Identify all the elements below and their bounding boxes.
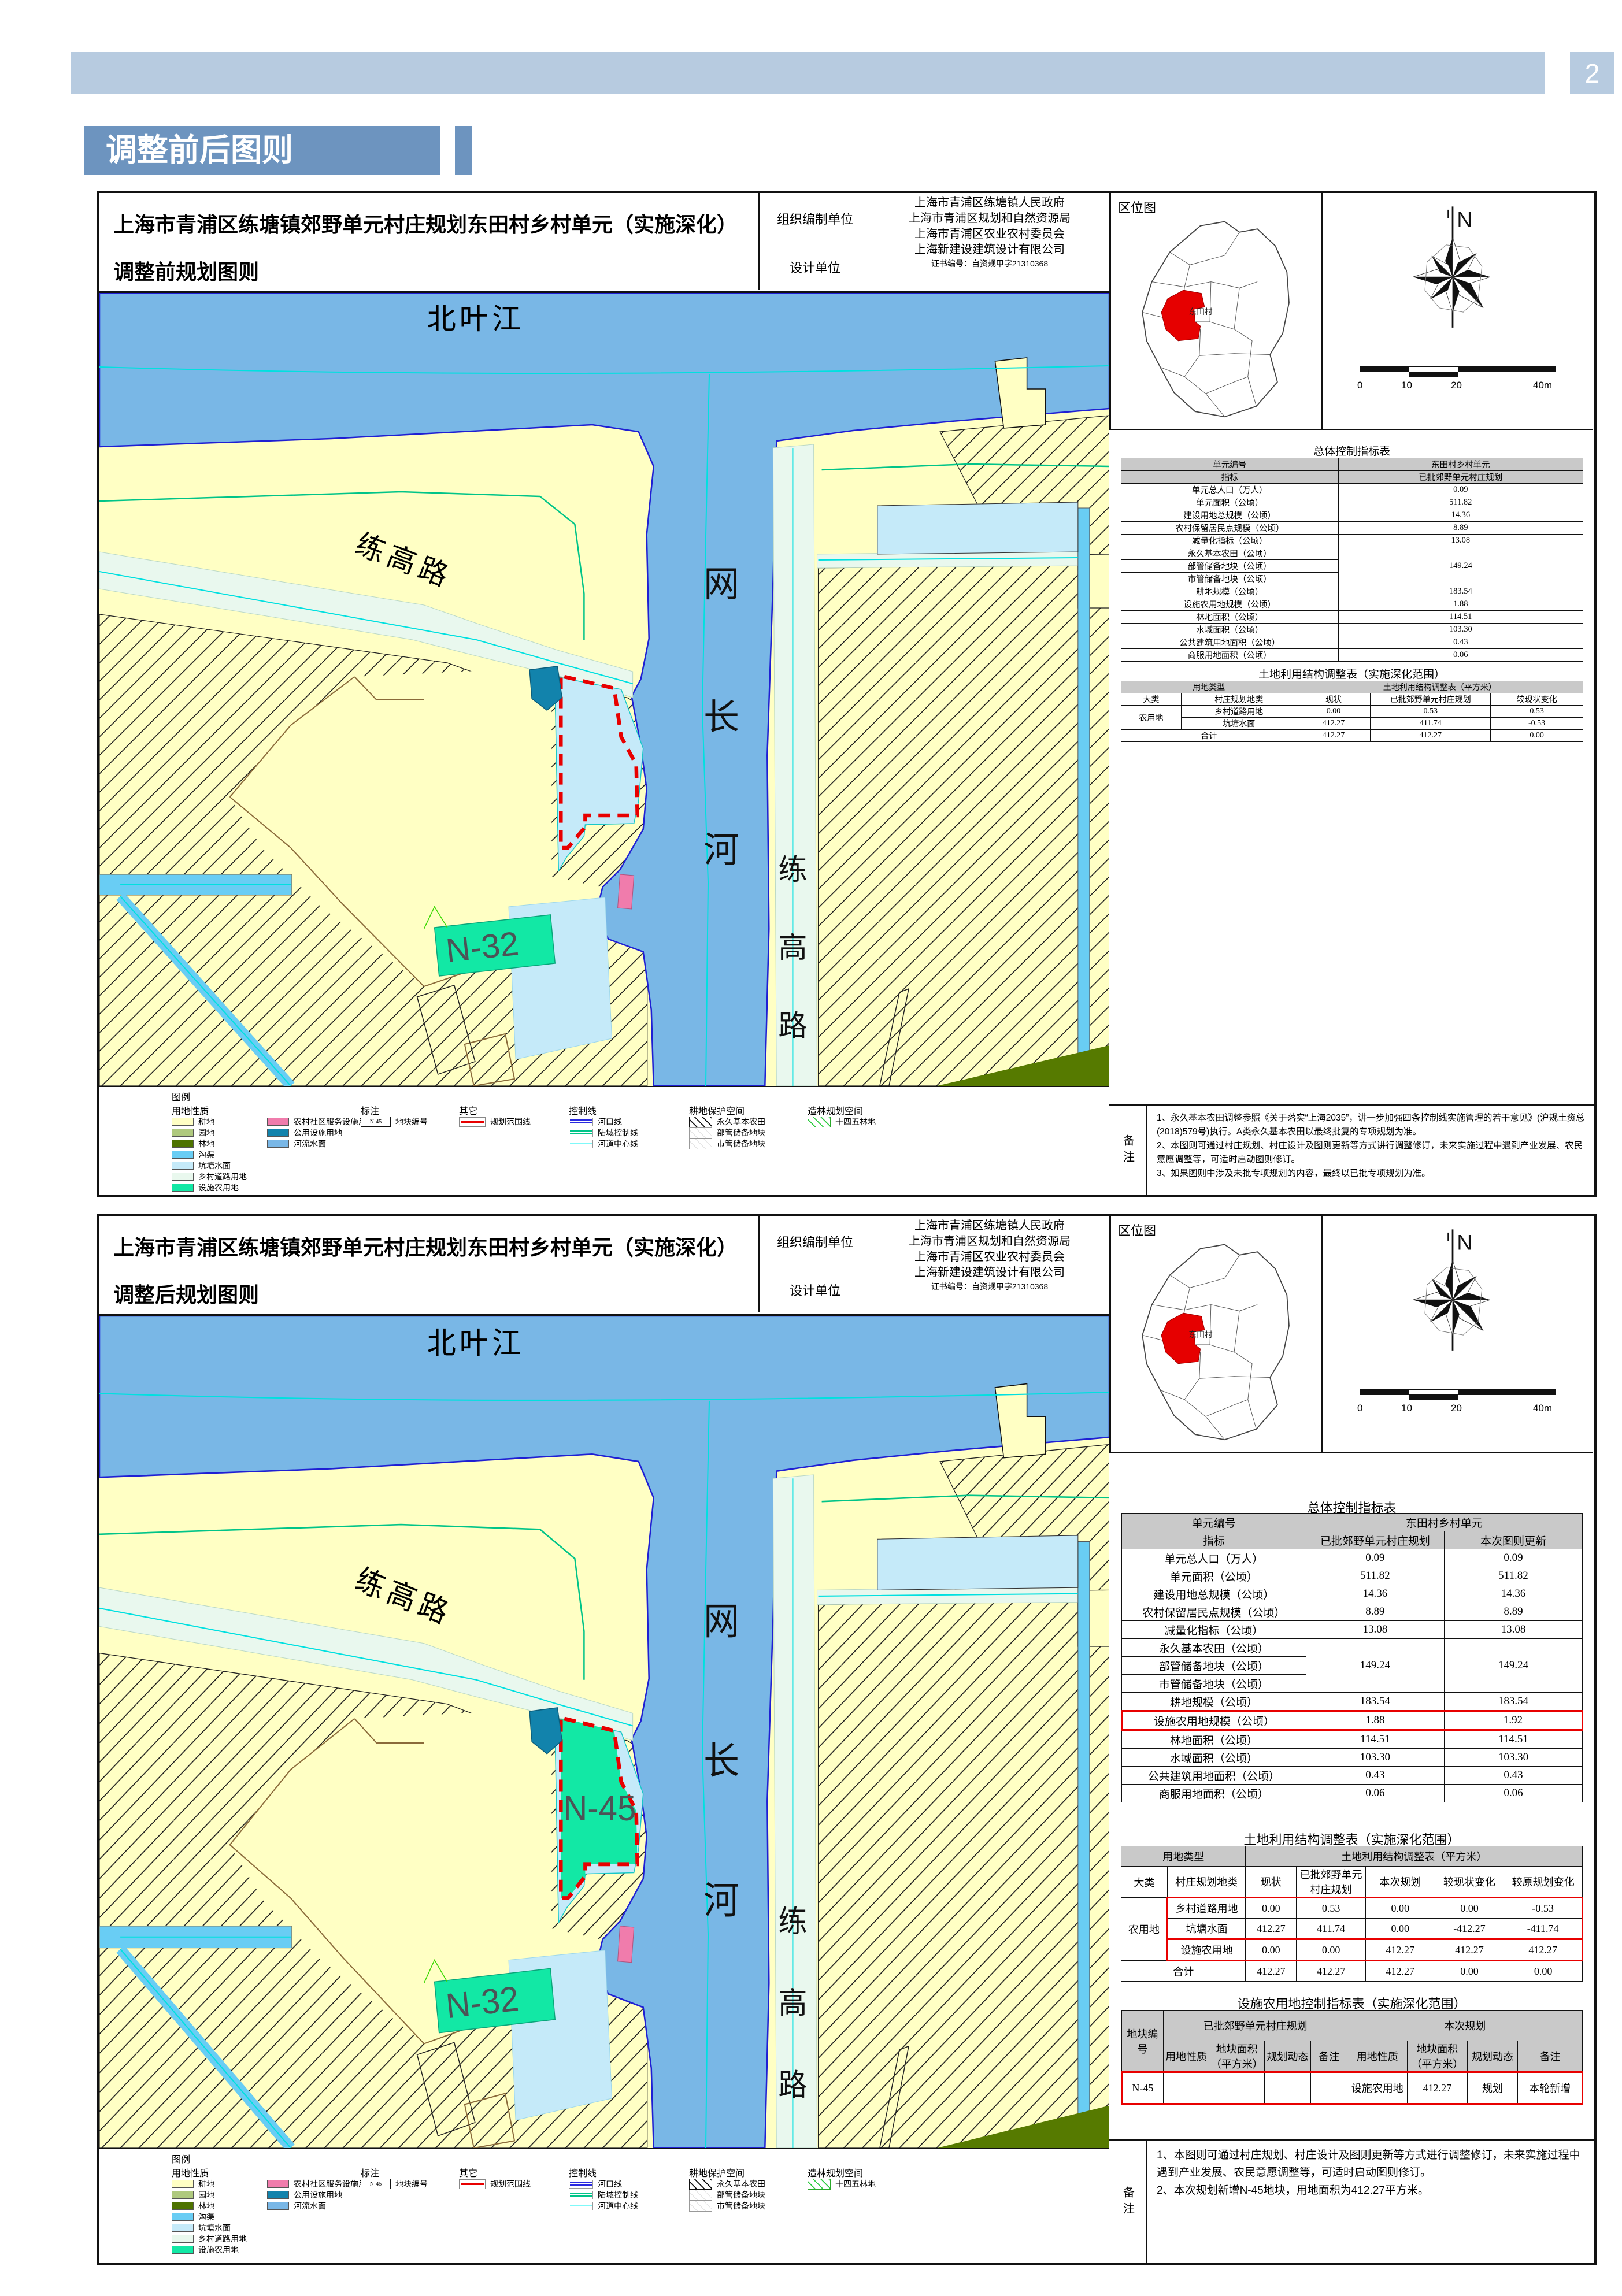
table-cell: 农用地	[1121, 1898, 1168, 1961]
legend-item: 河道中心线	[569, 2201, 638, 2210]
legend-item-label: 陆域控制线	[598, 2189, 638, 2201]
table-cell: 较现状变化	[1435, 1867, 1504, 1898]
panel2-notes: 备注 1、本图则可通过村庄规划、村庄设计及图则更新等方式进行调整修订，未来实施过…	[1109, 2139, 1594, 2263]
table-cell: 单元编号	[1121, 458, 1339, 471]
panel1-credits: 组织编制单位 设计单位 上海市青浦区练塘镇人民政府 上海市青浦区规划和自然资源局…	[758, 193, 1109, 290]
table-cell: 0.00	[1491, 730, 1583, 742]
table-cell: 减量化指标（公顷）	[1121, 535, 1339, 547]
legend-item-label: 公用设施用地	[294, 2189, 342, 2201]
legend-item-label: 沟渠	[198, 1149, 214, 1160]
org-unit-3: 上海市青浦区农业农村委员会	[870, 227, 1109, 242]
legend-line-swatch	[569, 1129, 593, 1137]
panel1-location-box: 区位图 0 10 20 40m	[1109, 193, 1593, 430]
scale-tick: 10	[1401, 380, 1412, 391]
legend-item-label: 十四五林地	[835, 2178, 876, 2190]
table-cell: 设施农用地规模（公顷）	[1121, 598, 1339, 611]
legend-item: 坑塘水面	[172, 2223, 231, 2232]
location-map	[1116, 1241, 1317, 1447]
legend-swatch	[689, 2179, 712, 2190]
table-cell: 412.27	[1246, 1961, 1297, 1982]
legend-line-swatch	[569, 2191, 593, 2199]
legend-item: 坑塘水面	[172, 1161, 231, 1170]
legend-item: 林地	[172, 2201, 214, 2210]
table-cell: -0.53	[1504, 1898, 1583, 1919]
table-cell: 412.27	[1365, 1939, 1435, 1961]
data-table: 用地类型土地利用结构调整表（平方米）大类村庄规划地类现状已批郊野单元村庄规划较现…	[1121, 681, 1583, 742]
legend-swatch	[459, 2179, 486, 2189]
legend-item-label: 部管储备地块	[717, 1127, 765, 1138]
table-cell: 规划动态	[1265, 2041, 1311, 2072]
table-cell: 地块面积（平方米）	[1209, 2041, 1265, 2072]
table-cell: 土地利用结构调整表（平方米）	[1297, 681, 1583, 693]
panel2-plan-map	[99, 1314, 1109, 2148]
table-cell: 0.06	[1306, 1785, 1444, 1802]
table-cell: 备注	[1518, 2041, 1583, 2072]
table-cell: 农用地	[1121, 706, 1182, 730]
design-unit-label: 设计单位	[760, 244, 870, 290]
legend-swatch	[267, 1140, 289, 1148]
legend-item: 沟渠	[172, 1150, 214, 1159]
legend-swatch	[808, 1117, 831, 1127]
legend-item-label: 设施农用地	[198, 2244, 239, 2256]
table-cell: 用地类型	[1121, 1846, 1246, 1867]
table-cell: 商服用地面积（公顷）	[1121, 649, 1339, 662]
table-cell: 0.00	[1504, 1961, 1583, 1982]
table-cell: 13.08	[1444, 1621, 1582, 1639]
legend-item: 设施农用地	[172, 1183, 239, 1192]
org-unit-2: 上海市青浦区规划和自然资源局	[870, 211, 1109, 227]
panel2-title-line1: 上海市青浦区练塘镇郊野单元村庄规划东田村乡村单元（实施深化）	[113, 1231, 749, 1261]
table-cell: 林地面积（公顷）	[1121, 611, 1339, 624]
legend-item: 园地	[172, 2190, 214, 2199]
table-cell: –	[1310, 2072, 1347, 2104]
legend-item-label: 河流水面	[294, 2200, 326, 2212]
legend-swatch	[172, 2202, 194, 2210]
legend-item-label: 沟渠	[198, 2211, 214, 2223]
table-cell: 土地利用结构调整表（平方米）	[1246, 1846, 1583, 1867]
legend-group-header: 用地性质	[172, 1103, 209, 1117]
table-cell: 8.89	[1306, 1603, 1444, 1621]
legend-swatch	[689, 1127, 712, 1138]
legend-swatch	[172, 2246, 194, 2254]
legend-item: 乡村道路用地	[172, 1172, 247, 1181]
table-cell: 单元总人口（万人）	[1122, 1549, 1306, 1567]
legend-item-label: 河道中心线	[598, 1138, 638, 1149]
legend-item-label: 陆域控制线	[598, 1127, 638, 1138]
legend-item: 耕地	[172, 1117, 214, 1126]
legend-swatch	[267, 2180, 289, 2188]
table-cell: 较现状变化	[1491, 693, 1583, 706]
legend-item: 河口线	[569, 1117, 622, 1126]
table-cell: 部管储备地块（公顷）	[1121, 560, 1339, 573]
panel1-overall-indicator-table: 单元编号东田村乡村单元指标已批郊野单元村庄规划单元总人口（万人）0.09单元面积…	[1121, 458, 1583, 662]
legend-swatch: N-45	[361, 2179, 391, 2189]
legend-item: 河口线	[569, 2179, 622, 2189]
legend-item: 河流水面	[267, 1139, 326, 1148]
page-number: 2	[1570, 52, 1614, 94]
table-cell: –	[1265, 2072, 1311, 2104]
legend-item: 市管储备地块	[689, 2201, 765, 2210]
table-cell: 412.27	[1246, 1919, 1297, 1939]
table-cell: 183.54	[1444, 1693, 1582, 1711]
table-cell: 水域面积（公顷）	[1121, 624, 1339, 636]
legend-group-header: 耕地保护空间	[689, 1103, 745, 1117]
table-cell: 0.00	[1365, 1898, 1435, 1919]
legend-item-label: 园地	[198, 1127, 214, 1138]
section-title: 调整前后图则	[84, 126, 440, 175]
table-cell: -411.74	[1504, 1919, 1583, 1939]
legend-item: 十四五林地	[808, 1117, 876, 1126]
legend-group-header: 其它	[459, 2165, 477, 2179]
table-cell: 耕地规模（公顷）	[1121, 585, 1339, 598]
legend-swatch	[689, 2190, 712, 2201]
note-label: 备注	[1109, 1106, 1147, 1195]
location-map-title: 区位图	[1118, 198, 1156, 216]
table-cell: 114.51	[1306, 1730, 1444, 1749]
table-cell: 0.06	[1444, 1785, 1582, 1802]
table-cell: 0.00	[1297, 1939, 1366, 1961]
legend-item-label: 耕地	[198, 1116, 214, 1127]
note-line: 3、如果图则中涉及未批专项规划的内容，最终以已批专项规划为准。	[1157, 1167, 1585, 1181]
legend-swatch	[172, 2213, 194, 2221]
table-cell: 103.30	[1444, 1749, 1582, 1767]
design-unit-name: 上海新建设建筑设计有限公司	[870, 1265, 1109, 1281]
org-unit-3: 上海市青浦区农业农村委员会	[870, 1249, 1109, 1265]
table-cell: 103.30	[1306, 1749, 1444, 1767]
data-table: 单元编号东田村乡村单元指标已批郊野单元村庄规划本次图则更新单元总人口（万人）0.…	[1121, 1513, 1583, 1802]
design-unit-label: 设计单位	[760, 1267, 870, 1312]
panel1-title-line2: 调整前规划图则	[113, 255, 259, 285]
legend-swatch	[267, 1118, 289, 1126]
legend-group-header: 造林规划空间	[808, 2165, 863, 2179]
legend-item: N-45地块编号	[361, 2179, 428, 2189]
table-cell: 用地性质	[1163, 2041, 1209, 2072]
note-line: 1、本图则可通过村庄规划、村庄设计及图则更新等方式进行调整修订，未来实施过程中遇…	[1157, 2147, 1585, 2182]
legend-swatch	[172, 2191, 194, 2199]
legend-item: 林地	[172, 1139, 214, 1148]
panel1-landuse-adjust-table: 用地类型土地利用结构调整表（平方米）大类村庄规划地类现状已批郊野单元村庄规划较现…	[1121, 681, 1583, 742]
legend-item-label: 林地	[198, 2200, 214, 2212]
table-cell: 0.00	[1297, 706, 1371, 718]
table-cell: 412.27	[1297, 730, 1371, 742]
table-cell: 1.88	[1338, 598, 1583, 611]
table-cell: 永久基本农田（公顷）	[1122, 1639, 1306, 1657]
scale-tick: 40m	[1533, 1403, 1552, 1414]
table-cell: 商服用地面积（公顷）	[1122, 1785, 1306, 1802]
note-line: 2、本图则可通过村庄规划、村庄设计及图则更新等方式讲行调整修订，未来实施过程中遇…	[1157, 1139, 1585, 1167]
legend-swatch: N-45	[361, 1117, 391, 1127]
table-cell: 现状	[1246, 1867, 1297, 1898]
data-table: 用地类型土地利用结构调整表（平方米）大类村庄规划地类现状已批郊野单元村庄规划本次…	[1121, 1846, 1583, 1982]
table-cell: 0.43	[1338, 636, 1583, 649]
table-cell: 设施农用地	[1347, 2072, 1408, 2104]
legend-group-header: 用地性质	[172, 2165, 209, 2179]
legend-swatch	[172, 1140, 194, 1148]
table-cell: 合计	[1121, 1961, 1246, 1982]
table-cell: 合计	[1121, 730, 1297, 742]
location-map	[1116, 218, 1317, 424]
legend-item-label: 河流水面	[294, 1138, 326, 1149]
table-cell: 412.27	[1365, 1961, 1435, 1982]
legend-swatch	[172, 2224, 194, 2232]
table-cell: 0.09	[1444, 1549, 1582, 1567]
table-cell: 市管储备地块（公顷）	[1121, 573, 1339, 585]
table-cell: 用地性质	[1347, 2041, 1408, 2072]
compass	[1398, 1225, 1508, 1364]
table-cell: 大类	[1121, 1867, 1168, 1898]
table-cell: 备注	[1310, 2041, 1347, 2072]
design-cert-number: 证书编号：自资规甲字21310368	[870, 258, 1109, 269]
table-cell: 公共建筑用地面积（公顷）	[1122, 1767, 1306, 1785]
scale-tick: 0	[1357, 1403, 1362, 1414]
legend-swatch	[172, 1184, 194, 1192]
legend-item-label: 规划范围线	[490, 1116, 531, 1127]
top-band	[71, 52, 1545, 94]
table-cell: 0.00	[1435, 1961, 1504, 1982]
legend-swatch	[689, 1138, 712, 1149]
legend-swatch	[267, 2202, 289, 2210]
legend-item: 部管储备地块	[689, 2190, 765, 2199]
table-cell: 已批郊野单元村庄规划	[1338, 471, 1583, 484]
legend-swatch	[172, 1162, 194, 1170]
table-cell: 411.74	[1371, 718, 1491, 730]
location-divider	[1321, 193, 1323, 429]
note-line: 2、本次规划新增N-45地块，用地面积为412.27平方米。	[1157, 2182, 1585, 2199]
legend-item: 农村社区服务设施用地	[267, 1117, 375, 1126]
table-cell: 13.08	[1306, 1621, 1444, 1639]
location-divider	[1321, 1216, 1323, 1452]
data-table: 单元编号东田村乡村单元指标已批郊野单元村庄规划单元总人口（万人）0.09单元面积…	[1121, 458, 1583, 662]
table-cell: 公共建筑用地面积（公顷）	[1121, 636, 1339, 649]
legend-swatch	[267, 2191, 289, 2199]
legend-item-label: 林地	[198, 1138, 214, 1149]
table-cell: 0.43	[1306, 1767, 1444, 1785]
legend-swatch	[172, 2180, 194, 2188]
table-cell: 0.53	[1491, 706, 1583, 718]
legend-group-header: 造林规划空间	[808, 1103, 863, 1117]
table-cell: 511.82	[1306, 1567, 1444, 1585]
legend-item: 部管储备地块	[689, 1128, 765, 1137]
table-cell: 农村保留居民点规模（公顷）	[1121, 522, 1339, 535]
table-cell: 511.82	[1444, 1567, 1582, 1585]
legend-item: N-45地块编号	[361, 1117, 428, 1126]
legend-item-label: 地块编号	[395, 1116, 428, 1127]
data-table: 地块编号已批郊野单元村庄规划本次规划用地性质地块面积（平方米）规划动态备注用地性…	[1121, 2010, 1583, 2105]
note-text: 1、本图则可通过村庄规划、村庄设计及图则更新等方式进行调整修订，未来实施过程中遇…	[1147, 2141, 1594, 2263]
table-cell: 建设用地总规模（公顷）	[1121, 509, 1339, 522]
design-unit-name: 上海新建设建筑设计有限公司	[870, 242, 1109, 258]
note-label: 备注	[1109, 2141, 1147, 2263]
table-cell: 114.51	[1338, 611, 1583, 624]
table-cell: 14.36	[1444, 1585, 1582, 1603]
table-cell: 坑塘水面	[1167, 1919, 1246, 1939]
legend-group-header: 标注	[361, 1103, 379, 1117]
legend-item-label: 乡村道路用地	[198, 2233, 247, 2245]
legend-group-header: 控制线	[569, 1103, 597, 1117]
legend-item: 乡村道路用地	[172, 2234, 247, 2243]
legend-swatch	[689, 1117, 712, 1127]
legend-item-label: 部管储备地块	[717, 2189, 765, 2201]
panel1-title-line1: 上海市青浦区练塘镇郊野单元村庄规划东田村乡村单元（实施深化）	[113, 208, 749, 238]
panel1-table1-title: 总体控制指标表	[1109, 443, 1594, 458]
scale-bar: 0 10 20 40m	[1360, 1389, 1556, 1424]
table-cell: 村庄规划地类	[1181, 693, 1297, 706]
legend-item: 永久基本农田	[689, 1117, 765, 1126]
table-cell: 本次规划	[1365, 1867, 1435, 1898]
table-cell: 已批郊野单元村庄规划	[1306, 1531, 1444, 1549]
panel1-table2-title: 土地利用结构调整表（实施深化范围）	[1109, 666, 1594, 681]
legend-swatch	[808, 2179, 831, 2190]
table-cell: 现状	[1297, 693, 1371, 706]
table-cell: 地块编号	[1122, 2011, 1164, 2072]
legend-item: 耕地	[172, 2179, 214, 2189]
legend-swatch	[172, 1173, 194, 1181]
table-cell: 14.36	[1338, 509, 1583, 522]
legend-item-label: 耕地	[198, 2178, 214, 2190]
legend-item: 公用设施用地	[267, 2190, 342, 2199]
table-cell: 农村保留居民点规模（公顷）	[1122, 1603, 1306, 1621]
legend-item-label: 永久基本农田	[717, 1116, 765, 1127]
table-cell: 坑塘水面	[1181, 718, 1297, 730]
table-cell: 乡村道路用地	[1167, 1898, 1246, 1919]
legend-item-label: 坑塘水面	[198, 2222, 231, 2234]
legend-swatch	[267, 1129, 289, 1137]
legend-title: 图例	[172, 2152, 190, 2165]
legend-item: 公用设施用地	[267, 1128, 342, 1137]
legend-item-label: 河口线	[598, 1116, 622, 1127]
panel2-legend: 图例用地性质耕地园地林地沟渠坑塘水面乡村道路用地设施农用地农村社区服务设施用地公…	[99, 2148, 1109, 2263]
table-cell: 乡村道路用地	[1181, 706, 1297, 718]
table-cell: 市管储备地块（公顷）	[1122, 1675, 1306, 1693]
panel2-landuse-adjust-table: 用地类型土地利用结构调整表（平方米）大类村庄规划地类现状已批郊野单元村庄规划本次…	[1121, 1846, 1583, 1982]
org-unit-2: 上海市青浦区规划和自然资源局	[870, 1234, 1109, 1249]
section-title-accent	[455, 126, 472, 175]
legend-group-header: 控制线	[569, 2165, 597, 2179]
panel1-notes: 备注 1、永久基本农田调整参照《关于落实“上海2035”，讲一步加强四条控制线实…	[1109, 1104, 1594, 1195]
table-cell: 412.27	[1297, 1961, 1366, 1982]
legend-item-label: 市管储备地块	[717, 2200, 765, 2212]
legend-swatch	[172, 1151, 194, 1159]
legend-item: 设施农用地	[172, 2245, 239, 2254]
table-cell: 指标	[1122, 1531, 1306, 1549]
table-cell: 0.53	[1371, 706, 1491, 718]
legend-line-swatch	[569, 1140, 593, 1148]
legend-item-label: 十四五林地	[835, 1116, 876, 1127]
table-cell: 村庄规划地类	[1167, 1867, 1246, 1898]
legend-item-label: 设施农用地	[198, 1182, 239, 1193]
table-cell: 1.88	[1306, 1711, 1444, 1730]
table-cell: 部管储备地块（公顷）	[1122, 1657, 1306, 1675]
table-cell: 设施农用地	[1167, 1939, 1246, 1961]
legend-item-label: 市管储备地块	[717, 1138, 765, 1149]
legend-item-label: 坑塘水面	[198, 1160, 231, 1171]
table-cell: 单元总人口（万人）	[1121, 484, 1339, 496]
table-cell: 412.27	[1504, 1939, 1583, 1961]
table-cell: 0.00	[1246, 1939, 1297, 1961]
table-cell: 本次图则更新	[1444, 1531, 1582, 1549]
panel-after-adjustment: 上海市青浦区练塘镇郊野单元村庄规划东田村乡村单元（实施深化） 调整后规划图则 组…	[97, 1214, 1597, 2265]
panel-before-adjustment: 上海市青浦区练塘镇郊野单元村庄规划东田村乡村单元（实施深化） 调整前规划图则 组…	[97, 191, 1597, 1197]
table-cell: 183.54	[1306, 1693, 1444, 1711]
table-cell: 已批郊野单元村庄规划	[1297, 1867, 1366, 1898]
table-cell: 0.53	[1297, 1898, 1366, 1919]
table-cell: 14.36	[1306, 1585, 1444, 1603]
table-cell: 0.43	[1444, 1767, 1582, 1785]
table-cell: 114.51	[1444, 1730, 1582, 1749]
legend-item: 陆域控制线	[569, 1128, 638, 1137]
table-cell: 411.74	[1297, 1919, 1366, 1939]
table-cell: 东田村乡村单元	[1306, 1514, 1582, 1531]
panel2-credits: 组织编制单位 设计单位 上海市青浦区练塘镇人民政府 上海市青浦区规划和自然资源局…	[758, 1216, 1109, 1312]
table-cell: 0.06	[1338, 649, 1583, 662]
table-cell: 单元编号	[1122, 1514, 1306, 1531]
legend-item-label: 公用设施用地	[294, 1127, 342, 1138]
org-unit-1: 上海市青浦区练塘镇人民政府	[870, 1218, 1109, 1234]
table-cell: 412.27	[1408, 2072, 1468, 2104]
legend-item: 十四五林地	[808, 2179, 876, 2189]
table-cell: -412.27	[1435, 1919, 1504, 1939]
scale-bar: 0 10 20 40m	[1360, 366, 1556, 401]
table-cell: 单元面积（公顷）	[1121, 496, 1339, 509]
table-cell: 规划动态	[1467, 2041, 1518, 2072]
scale-tick: 40m	[1533, 380, 1552, 391]
legend-item: 规划范围线	[459, 1117, 531, 1126]
legend-item: 河道中心线	[569, 1139, 638, 1148]
note-text: 1、永久基本农田调整参照《关于落实“上海2035”，讲一步加强四条控制线实施管理…	[1147, 1106, 1594, 1195]
table-cell: 149.24	[1306, 1639, 1444, 1693]
table-cell: 规划	[1467, 2072, 1518, 2104]
table-cell: 183.54	[1338, 585, 1583, 598]
scale-tick: 10	[1401, 1403, 1412, 1414]
table-cell: 较原规划变化	[1504, 1867, 1583, 1898]
table-cell: 已批郊野单元村庄规划	[1371, 693, 1491, 706]
legend-item-label: 河口线	[598, 2178, 622, 2190]
table-cell: 8.89	[1338, 522, 1583, 535]
panel1-plan-map	[99, 291, 1109, 1086]
table-cell: –	[1163, 2072, 1209, 2104]
table-cell: 412.27	[1435, 1939, 1504, 1961]
legend-item: 沟渠	[172, 2212, 214, 2221]
table-cell: 149.24	[1338, 547, 1583, 585]
table-cell: 减量化指标（公顷）	[1122, 1621, 1306, 1639]
legend-group-header: 其它	[459, 1103, 477, 1117]
table-cell: 已批郊野单元村庄规划	[1163, 2011, 1347, 2041]
table-cell: 8.89	[1444, 1603, 1582, 1621]
panel2-location-box: 区位图 0 10 20 40m	[1109, 1216, 1593, 1453]
table-cell: 103.30	[1338, 624, 1583, 636]
table-cell: 1.92	[1444, 1711, 1582, 1730]
panel2-title-line2: 调整后规划图则	[113, 1278, 259, 1308]
table-cell: 指标	[1121, 471, 1339, 484]
legend-item: 河流水面	[267, 2201, 326, 2210]
panel1-legend: 图例用地性质耕地园地林地沟渠坑塘水面乡村道路用地设施农用地农村社区服务设施用地公…	[99, 1086, 1109, 1195]
table-cell: 0.00	[1246, 1898, 1297, 1919]
table-cell: 0.00	[1435, 1898, 1504, 1919]
legend-item: 园地	[172, 1128, 214, 1137]
table-cell: 建设用地总规模（公顷）	[1122, 1585, 1306, 1603]
table-cell: -0.53	[1491, 718, 1583, 730]
table-cell: N-45	[1122, 2072, 1164, 2104]
panel2-facility-agri-table: 地块编号已批郊野单元村庄规划本次规划用地性质地块面积（平方米）规划动态备注用地性…	[1121, 2010, 1583, 2105]
table-cell: 412.27	[1371, 730, 1491, 742]
org-unit-label: 组织编制单位	[760, 1216, 870, 1267]
table-cell: 单元面积（公顷）	[1122, 1567, 1306, 1585]
compass	[1398, 202, 1508, 341]
table-cell: 0.00	[1365, 1919, 1435, 1939]
note-line: 1、永久基本农田调整参照《关于落实“上海2035”，讲一步加强四条控制线实施管理…	[1157, 1111, 1585, 1139]
legend-group-header: 耕地保护空间	[689, 2165, 745, 2179]
table-cell: 本次规划	[1347, 2011, 1583, 2041]
